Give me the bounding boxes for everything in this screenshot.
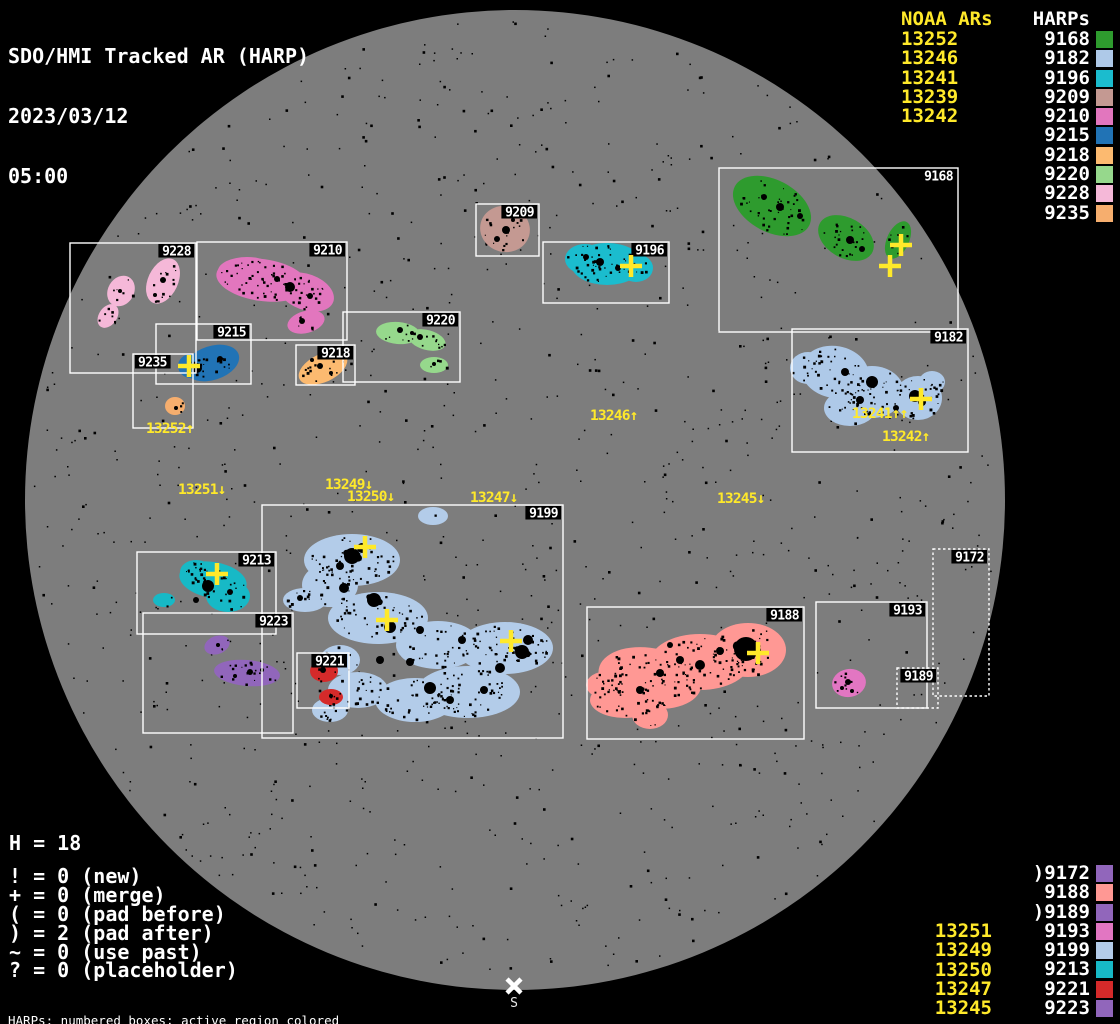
harp-item-9215: 9215 [1020,126,1120,145]
harp-color-swatch [1096,147,1113,164]
sunspot [329,694,333,698]
harp-box-label: 9196 [635,244,665,259]
noaa-ar-label: 13245↓ [717,491,765,507]
sunspot [416,626,424,634]
harp-box-label: 9223 [259,615,288,630]
sunspot [716,647,724,655]
sunspot [329,371,333,375]
harp-number: 9182 [1020,49,1090,68]
harp-color-swatch [1096,31,1113,48]
sunspot [596,258,604,266]
sunspot [494,236,500,242]
harp-color-swatch [1096,1000,1113,1017]
noaa-ar-item-13246: 13246 [901,49,958,68]
harp-box-label: 9189 [904,670,933,685]
harp-box-label: 9209 [505,206,534,221]
sunspot [845,679,851,685]
sunspot [495,663,505,673]
harp-box-label: 9172 [955,551,984,566]
harp-number: 9235 [1020,204,1090,223]
sunspot [417,334,423,340]
sunspot [856,396,864,404]
noaa-ar-label: 13252↑ [146,421,194,437]
noaa-ar-item-13249: 13249 [930,941,992,960]
harp-box-label: 9221 [315,655,345,670]
noaa-ar-list-north: 1325213246132411323913242 [901,30,958,126]
sunspot [299,318,305,324]
sunspot [636,686,644,694]
sunspot [118,289,122,293]
legend-line: ? = 0 (placeholder) [9,961,238,980]
harp-item-9182: 9182 [1020,49,1120,68]
sunspot [307,293,313,299]
sunspot [502,226,510,234]
active-region-blob [418,507,448,525]
harp-color-swatch [1096,884,1113,901]
sunspot [695,660,705,670]
sunspot [676,656,684,664]
sunspot [797,213,803,219]
noaa-ar-item-13250: 13250 [930,961,992,980]
sdo-hmi-harp-view: 9168918292099196922892109215921892209235… [0,0,1120,1024]
harp-item-9196: 9196 [1020,69,1120,88]
harp-color-swatch [1096,50,1113,67]
harp-box-label: 9210 [313,244,343,259]
harp-box-label: 9199 [529,507,558,522]
footnotes: HARPs: numbered boxes; active region col… [8,991,445,1024]
noaa-ar-label: 13251↓ [178,482,226,498]
noaa-ar-item-13242: 13242 [901,107,958,126]
sunspot [376,656,384,664]
sunspot [227,589,233,595]
harp-color-swatch [1096,942,1113,959]
harp-number: )9189 [1010,903,1090,922]
harp-box-label: 9220 [426,314,456,329]
harp-box-label: 9193 [893,604,922,619]
sunspot [850,689,854,693]
sunspot [841,368,849,376]
sunspot [285,282,295,292]
harp-box-label: 9168 [924,170,954,185]
sunspot [297,595,303,601]
sunspot [317,363,323,369]
sunspot [217,356,223,362]
sunspot [840,686,844,690]
page-title: SDO/HMI Tracked AR (HARP) [8,46,309,66]
noaa-ar-label: 13241↑↑ [852,406,908,422]
harp-color-swatch [1096,185,1113,202]
harp-number: 9223 [1010,999,1090,1018]
harp-box-label: 9218 [321,347,351,362]
sunspot [432,362,436,366]
sunspot [274,276,280,282]
harp-box-label: 9188 [770,609,800,624]
noaa-ars-column-header: NOAA ARs [901,10,993,29]
harp-color-swatch [1096,923,1113,940]
sunspot [193,597,199,603]
harp-list-north: 9168918291969209921092159218922092289235 [1020,30,1120,223]
harp-color-swatch [1096,961,1113,978]
noaa-ar-label: 13242↑ [882,429,930,445]
sunspot [406,658,414,666]
harp-item-9223: 9223 [1010,999,1120,1018]
sunspot [776,203,784,211]
sunspot [667,642,673,648]
harp-number: 9215 [1020,126,1090,145]
sunspot [458,636,466,644]
sunspot [846,236,854,244]
sunspot [160,277,166,283]
noaa-ar-label: 13246↑ [590,408,638,424]
harps-column-header: HARPs [1020,10,1090,29]
noaa-ar-list-south: 1325113249132501324713245 [930,922,992,1018]
sunspot [310,358,314,362]
sunspot [859,246,865,252]
date-label: 2023/03/12 [8,106,309,126]
noaa-ar-label: 13250↓ [347,489,395,505]
sunspot [424,682,436,694]
sunspot [523,635,533,645]
sunspot [233,674,237,678]
harp-region-9235 [165,397,185,415]
harp-item-9228: 9228 [1020,184,1120,203]
sunspot [339,583,349,593]
sunspot [583,254,589,260]
sunspot [480,686,488,694]
harp-list-south: )91729188)918991939199921392219223 [1010,864,1120,1018]
footnote-harps: HARPs: numbered boxes; active region col… [8,1015,445,1024]
harp-number: 9188 [1010,883,1090,902]
sunspot [410,331,414,335]
harp-box-label: 9235 [138,356,167,371]
sunspot [446,696,454,704]
active-region-blob [632,701,668,729]
noaa-ar-item-13241: 13241 [901,69,958,88]
noaa-ar-label: 13247↓ [470,490,518,506]
sunspot [761,194,767,200]
harp-item-9188: 9188 [1010,883,1120,902]
harp-number: 9213 [1010,960,1090,979]
status-legend: ! = 0 (new)+ = 0 (merge)( = 0 (pad befor… [9,867,238,980]
harp-color-swatch [1096,865,1113,882]
sunspot [336,562,344,570]
harp-item-9189: )9189 [1010,903,1120,922]
harp-box-label: 9213 [242,554,271,569]
harp-color-swatch [1096,108,1113,125]
harp-box-label: 9228 [162,245,192,260]
south-pole-label: S [510,996,518,1011]
time-label: 05:00 [8,166,309,186]
harp-item-9213: 9213 [1010,960,1120,979]
harp-box-label: 9215 [217,326,246,341]
harp-color-swatch [1096,70,1113,87]
harp-number: 9196 [1020,69,1090,88]
harp-color-swatch [1096,981,1113,998]
sunspot [397,327,403,333]
sunspot [216,643,220,647]
sunspot [247,669,253,675]
harp-color-swatch [1096,89,1113,106]
sunspot [174,406,178,410]
active-region-blob [153,593,175,607]
harp-box-label: 9182 [934,331,963,346]
harp-color-swatch [1096,166,1113,183]
noaa-ar-item-13245: 13245 [930,999,992,1018]
harp-color-swatch [1096,205,1113,222]
sunspot [656,669,664,677]
harp-number: 9228 [1020,184,1090,203]
harp-color-swatch [1096,904,1113,921]
harp-color-swatch [1096,127,1113,144]
sunspot [153,293,157,297]
sunspot [202,580,214,592]
sunspot [866,376,878,388]
harp-count: H = 18 [9,831,81,855]
title-block: SDO/HMI Tracked AR (HARP) 2023/03/12 05:… [8,6,309,226]
harp-item-9235: 9235 [1020,204,1120,223]
